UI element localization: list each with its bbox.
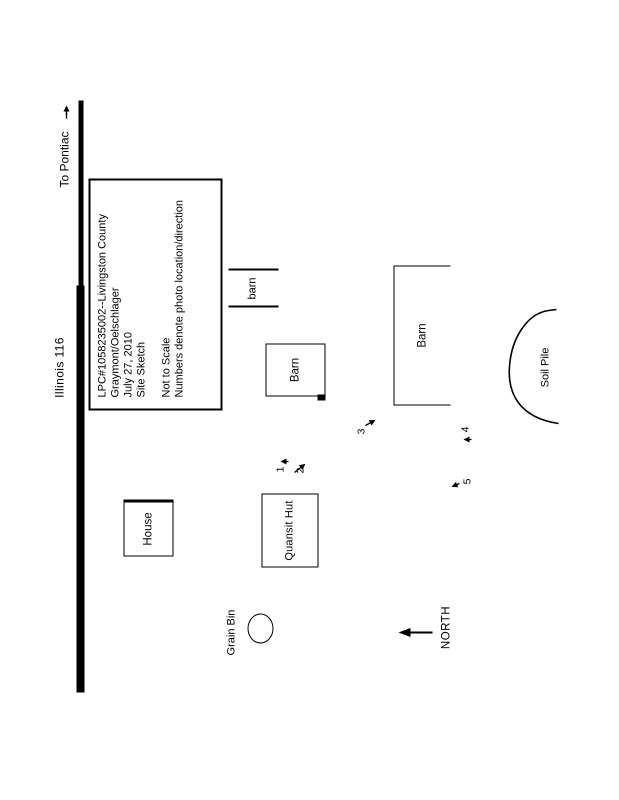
photo-marker-2-arrow [294, 464, 304, 472]
north-arrow-icon [398, 628, 432, 637]
photo-marker-5-arrow [452, 483, 459, 486]
soil-pile-arc [509, 309, 558, 423]
sketch-linework-layer [0, 0, 619, 800]
site-sketch-drawing: Illinois 116 To Pontiac LPC#1058235002--… [0, 0, 619, 800]
scanned-site-sketch-page: Illinois 116 To Pontiac LPC#1058235002--… [0, 0, 619, 800]
photo-marker-3-arrow [365, 420, 374, 425]
